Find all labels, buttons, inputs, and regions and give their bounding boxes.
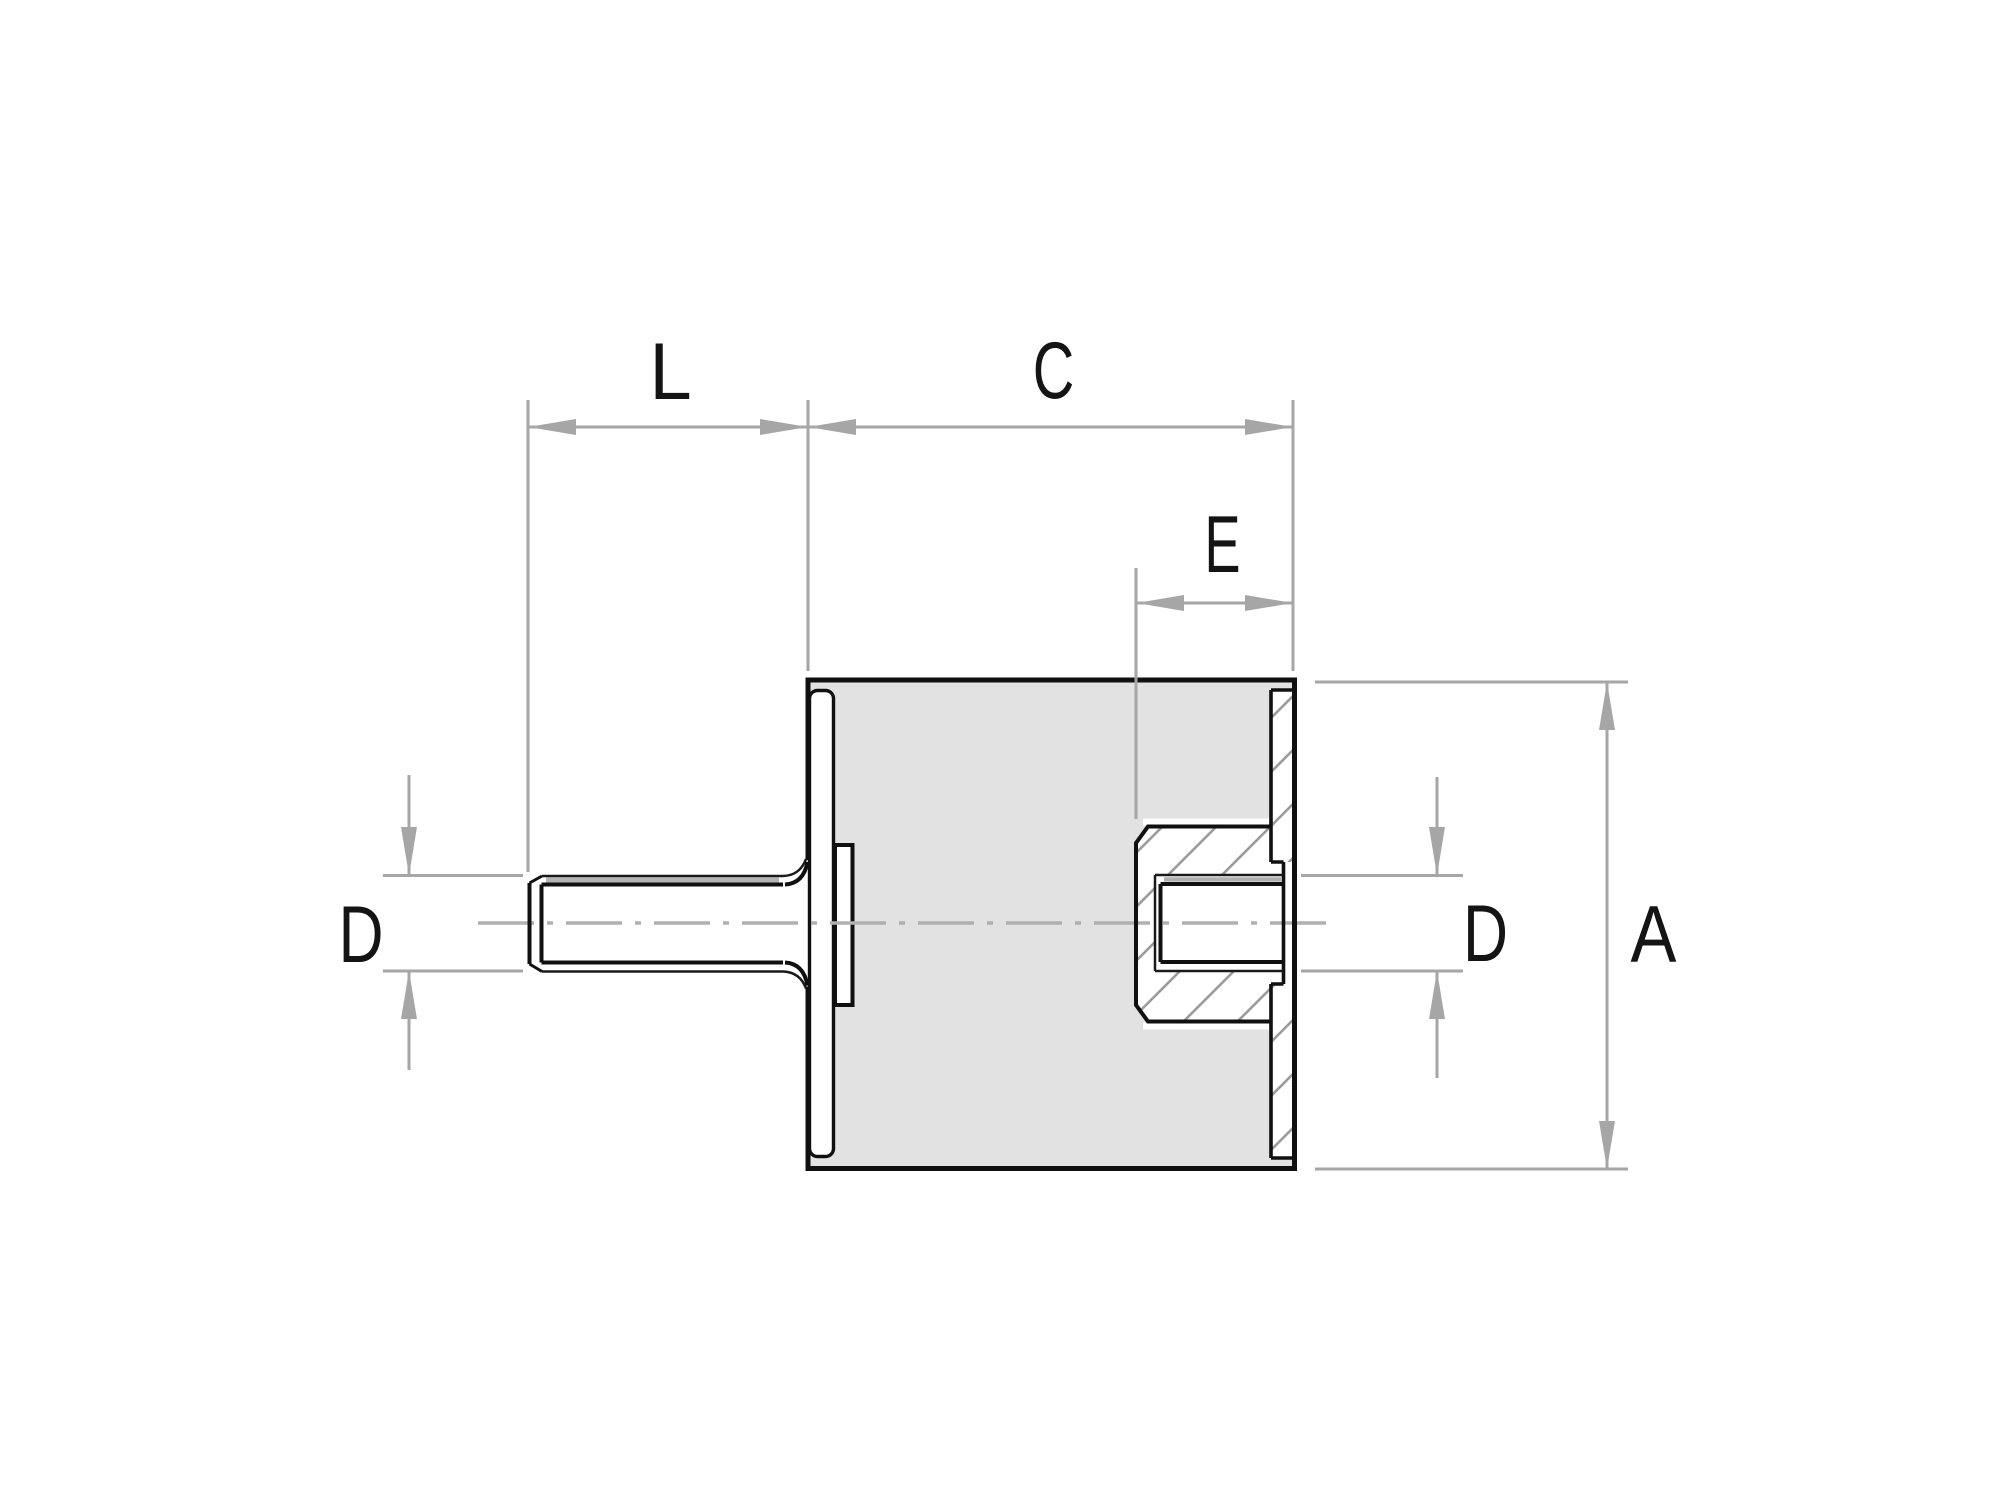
svg-text:L: L bbox=[649, 326, 691, 417]
svg-text:C: C bbox=[1033, 324, 1075, 415]
svg-text:A: A bbox=[1631, 889, 1677, 980]
svg-text:D: D bbox=[338, 890, 383, 980]
svg-text:E: E bbox=[1204, 499, 1240, 589]
svg-text:D: D bbox=[1463, 889, 1508, 979]
